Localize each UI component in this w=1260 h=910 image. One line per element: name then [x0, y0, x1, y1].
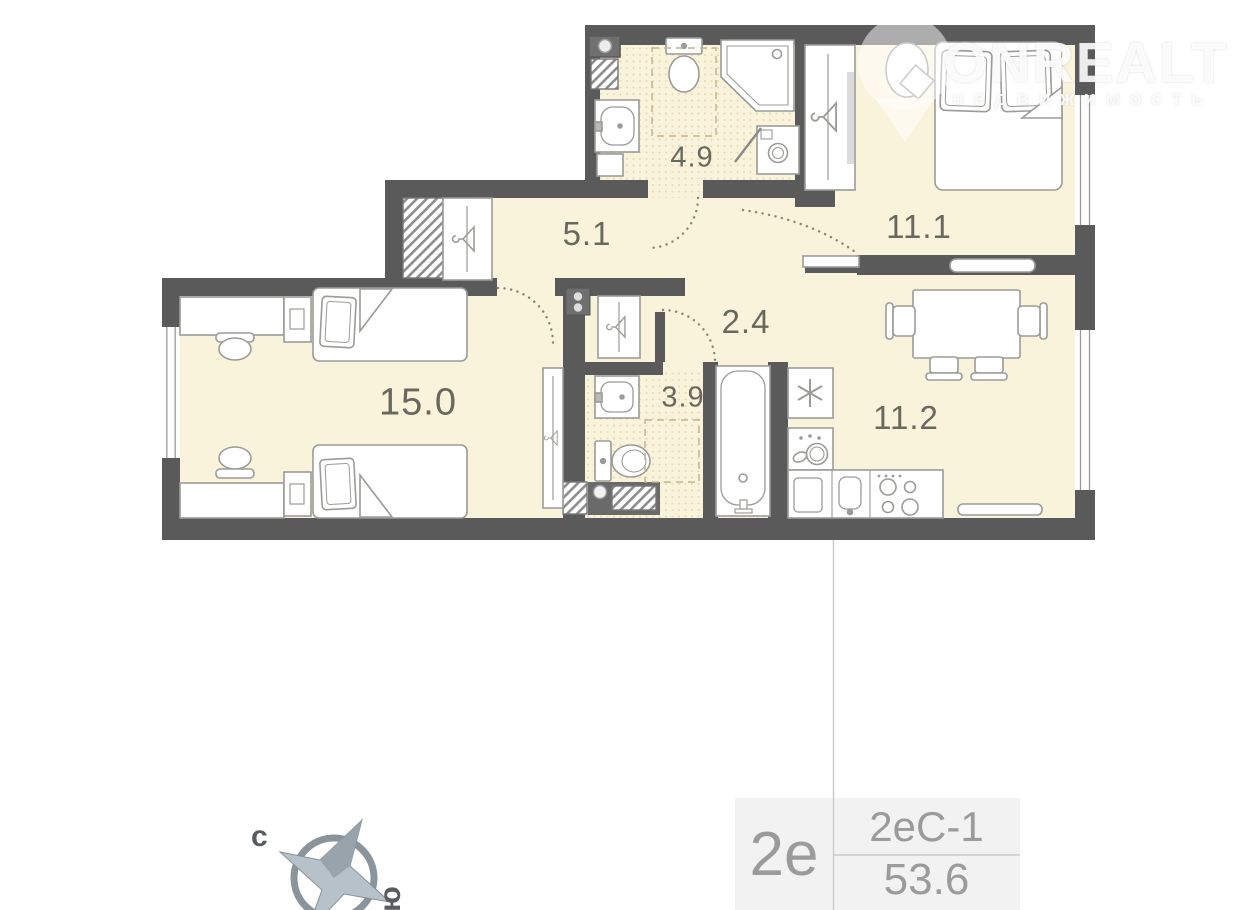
- bed-icon: [284, 288, 467, 361]
- washing-machine-icon: [735, 126, 799, 174]
- location-pin-icon: [858, 16, 952, 142]
- compass-north-label: с: [251, 820, 268, 854]
- dishwasher-icon: [788, 428, 833, 470]
- toilet-icon: [595, 441, 650, 481]
- desk-icon: [180, 483, 284, 518]
- dining-table-icon: [913, 290, 1020, 358]
- floor-areas: [180, 45, 1075, 518]
- radiator: [958, 504, 1042, 515]
- wardrobe-icon: [543, 368, 563, 508]
- radiator: [950, 259, 1035, 272]
- wardrobe-icon: [805, 45, 855, 190]
- room-label-living-room: 15.0: [379, 382, 457, 425]
- compass-south-label: ю: [374, 886, 408, 910]
- room-label-hallway: 5.1: [563, 215, 612, 253]
- watermark-subtitle: недвижимость: [952, 88, 1213, 111]
- sink-icon: [595, 376, 639, 418]
- chair-icon: [1018, 303, 1047, 339]
- wardrobe-icon: [598, 296, 640, 358]
- toilet-icon: [666, 38, 702, 92]
- chair-icon: [216, 447, 254, 478]
- sink-icon: [595, 100, 639, 152]
- chair-icon: [886, 303, 915, 339]
- room-label-bathroom-bottom: 3.9: [661, 382, 704, 415]
- room-label-bathroom-top: 4.9: [670, 142, 713, 175]
- dashed-zone: [645, 48, 716, 482]
- chair-icon: [971, 357, 1007, 380]
- electric-panel-icon: [566, 288, 590, 315]
- bed-icon: [284, 445, 467, 518]
- side-table-icon: [886, 43, 934, 99]
- kitchen-counter: [788, 470, 943, 518]
- stove-icon: [878, 475, 918, 515]
- shower-icon: [721, 40, 794, 111]
- window: [1075, 95, 1095, 225]
- door-swing-arc: [498, 198, 858, 362]
- room-label-kitchen: 11.2: [873, 399, 939, 437]
- shaft-hatch: [403, 59, 656, 514]
- room-label-bedroom: 11.1: [886, 208, 952, 246]
- window: [1075, 330, 1095, 490]
- bathtub-icon: [716, 366, 770, 516]
- fridge-icon: [788, 368, 833, 418]
- total-area-label: 53.6: [833, 855, 1020, 910]
- door-leaf: [803, 256, 859, 267]
- layout-short-label: 2е: [735, 798, 833, 910]
- layout-code-label: 2еС-1: [833, 798, 1020, 855]
- apartment-info-panel: 2е 2еС-1 53.6: [735, 798, 1020, 910]
- kitchen-sink-icon: [839, 477, 861, 515]
- window: [162, 327, 180, 458]
- desk-icon: [180, 297, 284, 335]
- chair-icon: [216, 333, 254, 360]
- oven-icon: [794, 478, 822, 512]
- room-label-corridor: 2.4: [722, 303, 771, 341]
- watermark-brand: ONREALT: [943, 30, 1228, 96]
- cabinet-icon: [597, 154, 623, 176]
- washer-counter-icon: [589, 36, 620, 57]
- floorplan-canvas: 2е 2еС-1 53.6: [0, 0, 1260, 910]
- vent-icon: [594, 486, 607, 499]
- chair-icon: [926, 357, 962, 380]
- wardrobe-icon: [443, 198, 492, 280]
- floorplan-drawing: [0, 0, 1260, 910]
